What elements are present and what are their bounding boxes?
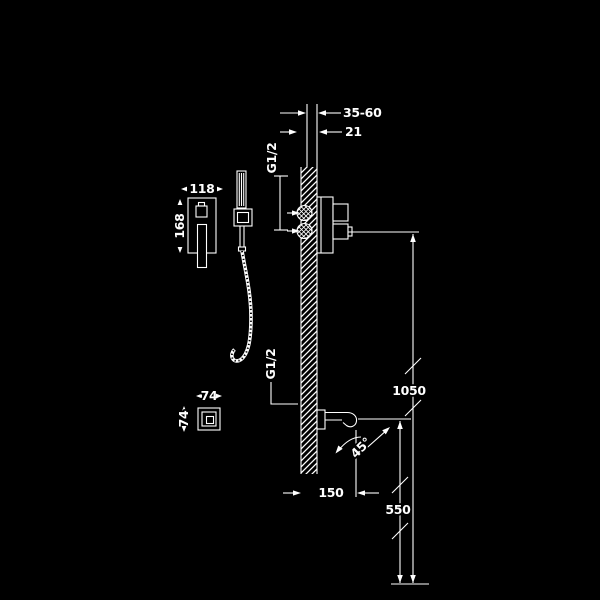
arrowhead <box>410 234 416 242</box>
arrowhead <box>397 575 403 583</box>
thread-size-bottom: G1/2 <box>263 348 298 404</box>
dim-install-depth-offset: 21 <box>280 124 362 139</box>
swivel-angle-label: 45° <box>347 434 374 461</box>
arrowhead <box>410 575 416 583</box>
mixer-valve-side-view <box>287 197 352 253</box>
outlet-plate-inner <box>207 417 214 424</box>
arrowhead <box>217 187 223 192</box>
arrowhead <box>357 490 365 495</box>
outlet-plate-outer <box>198 408 220 430</box>
elbow-body <box>317 410 325 429</box>
dim-plate-height: 168 <box>172 199 187 253</box>
thread-size-top-label: G1/2 <box>264 142 279 173</box>
dim-outlet-plate-height: 74 <box>176 406 191 432</box>
dim-install-depth-offset-label: 21 <box>345 124 362 139</box>
arrowhead <box>181 187 187 192</box>
dim-install-depth-range-label: 35-60 <box>343 105 382 120</box>
arrowhead <box>293 490 301 495</box>
shower-holder-bracket <box>234 209 252 226</box>
installation-diagram: 35-60 21 G1/2 1 <box>0 0 600 600</box>
hose-nut <box>239 247 246 251</box>
dim-mixer-height: 1050 <box>348 232 426 583</box>
dim-outlet-plate-height-label: 74 <box>176 410 191 427</box>
dim-install-depth-range: 35-60 <box>280 105 382 120</box>
dim-plate-height-label: 168 <box>172 213 187 238</box>
arrowhead <box>318 110 326 115</box>
cartridge-lower <box>333 224 348 239</box>
dim-mixer-height-label: 1050 <box>392 383 426 398</box>
outlet-elbow-side-view <box>317 410 357 429</box>
outlet-front-view <box>198 408 220 430</box>
arrowhead <box>178 199 183 205</box>
arrowhead <box>397 421 403 429</box>
supply-pipe-top <box>307 104 317 167</box>
hand-shower-front-view <box>232 171 252 361</box>
mixer-plate-front-view <box>188 198 216 268</box>
valve-body <box>317 197 333 253</box>
arrowhead <box>178 247 183 253</box>
dim-outlet-projection-label: 150 <box>318 485 344 500</box>
cartridge-upper <box>333 204 348 221</box>
shower-hose-ribs <box>232 251 251 361</box>
arrowhead <box>319 129 327 134</box>
swivel-annotation: 45° <box>336 427 391 461</box>
dim-outlet-plate-width-label: 74 <box>201 388 218 403</box>
arrowhead <box>298 110 306 115</box>
thread-size-bottom-label: G1/2 <box>263 348 278 379</box>
finished-wall-reference-line <box>274 176 288 230</box>
hose-connector-hook <box>343 413 357 427</box>
arrowhead <box>289 129 297 134</box>
dim-plate-width-label: 118 <box>189 181 214 196</box>
lever-handle <box>198 225 207 268</box>
leader-line <box>271 382 298 404</box>
dim-outlet-height-label: 550 <box>385 502 411 517</box>
arrowhead <box>182 426 187 432</box>
arrowhead <box>216 394 222 399</box>
dim-outlet-plate-width: 74 <box>196 388 222 403</box>
dim-plate-width: 118 <box>181 181 223 196</box>
